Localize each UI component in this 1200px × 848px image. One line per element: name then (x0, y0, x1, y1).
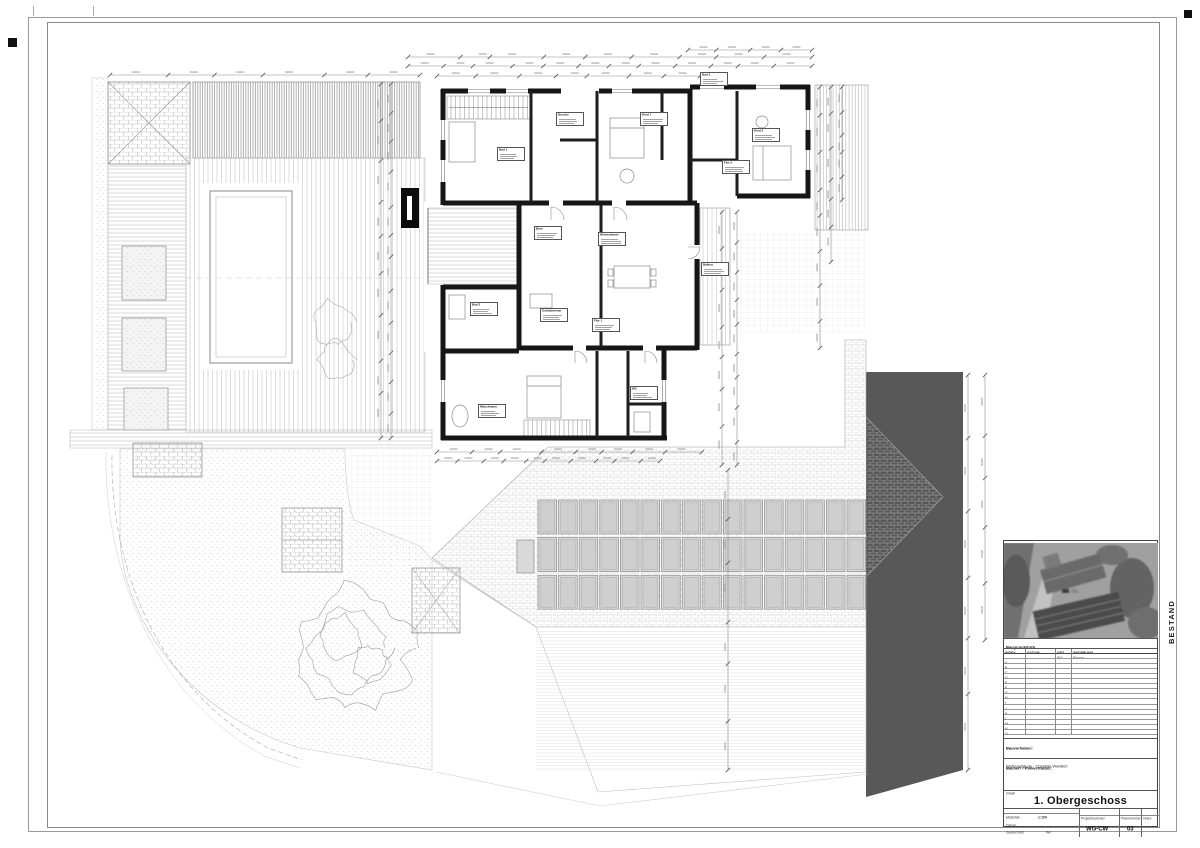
meta-strip: Maßstab 1:100 Datum Gezeichnet WJ Projek… (1004, 808, 1157, 828)
project-no-value: WG-CW (1086, 826, 1108, 832)
scale-label: Maßstab (1006, 817, 1020, 819)
rev-cell (1026, 730, 1056, 735)
index-label: Index (1143, 817, 1152, 821)
pavilion-roof-2 (412, 568, 460, 633)
drawn-label: Gezeichnet (1006, 832, 1024, 834)
solar-panel-array (517, 500, 866, 609)
date-label: Datum (1006, 825, 1016, 827)
project-no-cell: Projektnummer WG-CW (1080, 809, 1120, 837)
plan-no-cell: Plannummer 03 (1120, 809, 1142, 837)
rev-cell (1056, 730, 1072, 735)
pergola-roof (193, 82, 420, 158)
section-marker (401, 188, 419, 228)
plan-no-label: Plannummer (1121, 817, 1141, 821)
drawn-value: WJ (1046, 832, 1051, 834)
rev-index-letter: O (1004, 730, 1026, 735)
meta-left-cell: Maßstab 1:100 Datum Gezeichnet WJ (1004, 809, 1080, 837)
status-strip: BESTAND (1158, 540, 1176, 827)
shed-roof-2 (282, 508, 342, 572)
plan-no-value: 03 (1127, 826, 1134, 832)
project-label: Bauvorhaben: (1006, 746, 1033, 751)
content-label: Inhalt (1006, 792, 1015, 796)
pool (202, 183, 300, 370)
hedge-strip (92, 78, 108, 430)
scale-value: 1:100 (1038, 817, 1047, 819)
drawing-sheet: Bad 3DuscheKind 1Kind 2Flur 2Bad 1BüroWo… (0, 0, 1200, 848)
planters (122, 246, 168, 430)
aerial-photo (1004, 543, 1158, 638)
garage-roof (815, 85, 868, 230)
sheet-title: 1. Obergeschoss (1004, 795, 1157, 807)
paving-grid (347, 449, 432, 567)
status-label: BESTAND (1167, 600, 1176, 644)
title-block: Baugrundstück INDEX DATUM GEZ. ÄNDERUNG … (1003, 540, 1158, 827)
pavilion-roof (108, 82, 190, 164)
owner-section: Bauherr / Planverfasser: (1004, 758, 1157, 790)
owner-label: Bauherr / Planverfasser: (1006, 766, 1052, 771)
plot-label-row: Baugrundstück (1004, 638, 1157, 648)
project-no-label: Projektnummer (1081, 817, 1105, 821)
paved-band (70, 430, 432, 448)
eaves-lines (436, 772, 868, 806)
project-section: Bauvorhaben: Wohngebäude · Christian Wei… (1004, 738, 1157, 758)
content-section: Inhalt 1. Obergeschoss (1004, 790, 1157, 808)
paving-grid-2 (737, 232, 865, 332)
rev-cell (1072, 730, 1157, 735)
revision-table: INDEX DATUM GEZ. ÄNDERUNG WJ Einzug ABCD… (1004, 648, 1157, 738)
lower-roof-plane (536, 630, 866, 770)
shed-roof (133, 443, 202, 477)
